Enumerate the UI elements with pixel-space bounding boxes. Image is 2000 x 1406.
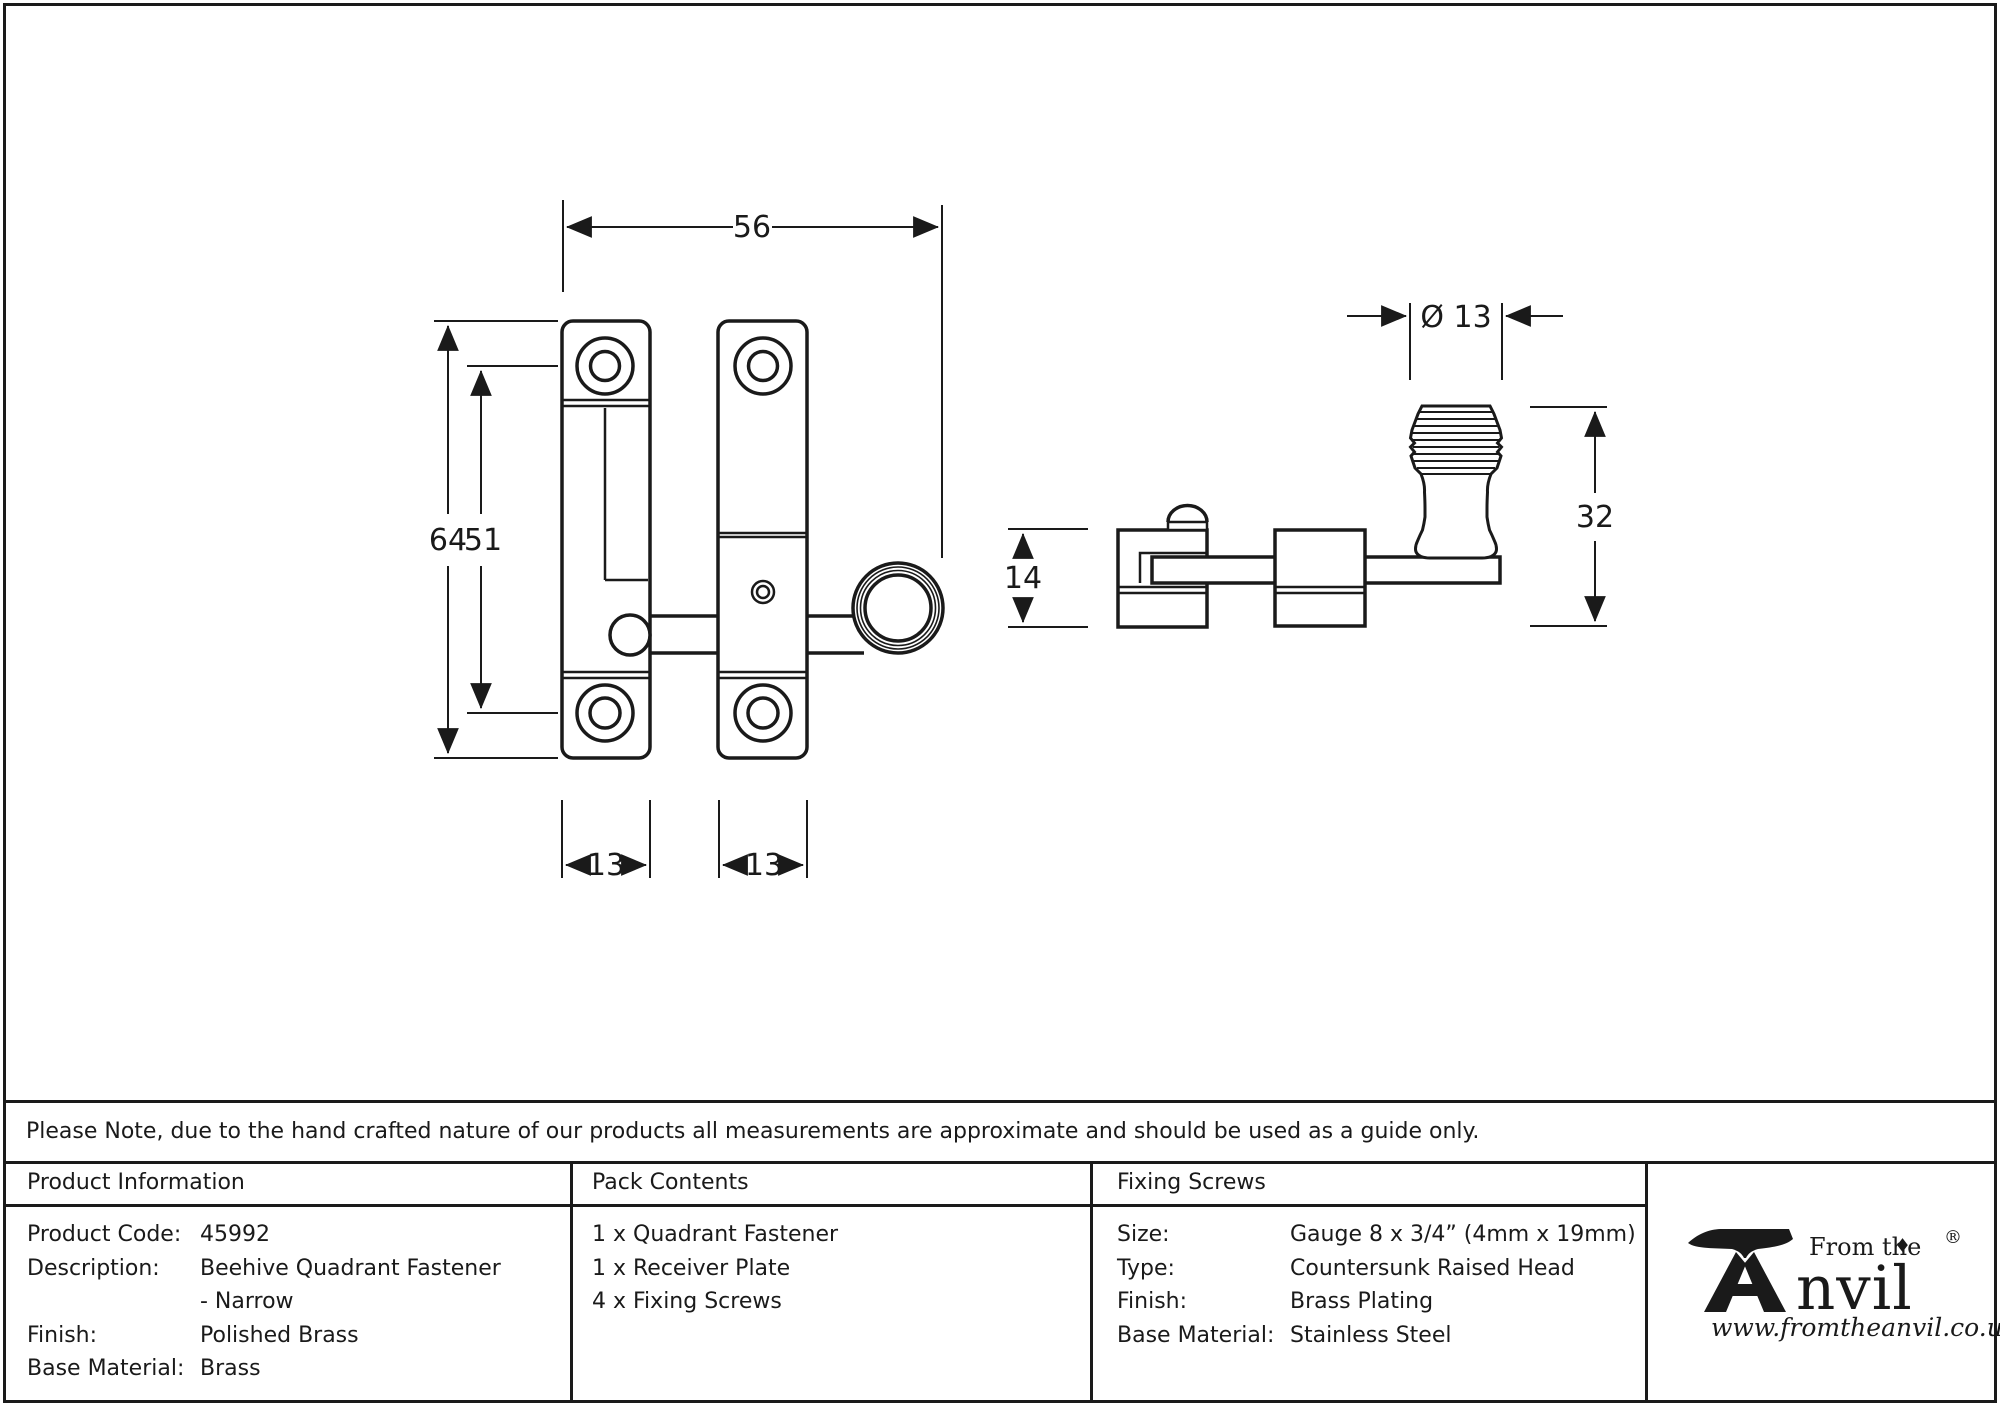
guide-block-side: [1275, 530, 1365, 626]
dim-knob-height-label: 32: [1576, 500, 1614, 535]
dim-height-overall-label: 64: [429, 523, 467, 558]
base-material-value: Brass: [200, 1356, 261, 1381]
product-information-cell: Product Code: 45992 Description: Beehive…: [27, 1218, 501, 1386]
description-row: Description: Beehive Quadrant Fastener: [27, 1252, 501, 1286]
ring-handle: [853, 563, 943, 653]
description-row-2: - Narrow: [27, 1285, 501, 1319]
finish-row: Finish: Polished Brass: [27, 1319, 501, 1353]
screw-material-label: Base Material:: [1117, 1323, 1290, 1348]
fastener-plate-front: [718, 321, 807, 758]
pack-item-2: 1 x Receiver Plate: [592, 1252, 838, 1286]
base-material-row: Base Material: Brass: [27, 1352, 501, 1386]
beehive-knob: [1411, 406, 1502, 558]
description-value: Beehive Quadrant Fastener: [200, 1256, 501, 1281]
pack-item-3: 4 x Fixing Screws: [592, 1285, 838, 1319]
screw-size-row: Size: Gauge 8 x 3/4” (4mm x 19mm): [1117, 1218, 1636, 1252]
logo-website-url: www.fromtheanvil.co.uk: [1711, 1313, 2000, 1342]
screw-finish-value: Brass Plating: [1290, 1289, 1433, 1314]
spec-sheet-page: 56 64 51: [0, 0, 2000, 1406]
base-material-label: Base Material:: [27, 1356, 200, 1381]
fixing-screws-header: Fixing Screws: [1117, 1161, 1266, 1204]
finish-label: Finish:: [27, 1323, 200, 1348]
pack-item-1: 1 x Quadrant Fastener: [592, 1218, 838, 1252]
product-information-header: Product Information: [27, 1161, 245, 1204]
anvil-icon: [1686, 1226, 1804, 1314]
dim-plate-right-label: 13: [745, 848, 783, 883]
dim-plate-left-label: 13: [587, 848, 625, 883]
screw-type-row: Type: Countersunk Raised Head: [1117, 1252, 1636, 1286]
logo-brand-text: nvil: [1796, 1258, 1913, 1319]
screw-type-value: Countersunk Raised Head: [1290, 1256, 1575, 1281]
registered-trademark-symbol: ®: [1944, 1227, 1962, 1248]
fixing-screws-cell: Size: Gauge 8 x 3/4” (4mm x 19mm) Type: …: [1117, 1218, 1636, 1352]
description-value-2: - Narrow: [200, 1289, 294, 1314]
measurement-note: Please Note, due to the hand crafted nat…: [26, 1101, 1479, 1161]
finish-value: Polished Brass: [200, 1323, 359, 1348]
screw-size-label: Size:: [1117, 1222, 1290, 1247]
product-code-label: Product Code:: [27, 1222, 200, 1247]
front-view-drawing: 56 64 51: [429, 200, 943, 883]
dim-bracket-height-label: 14: [1004, 561, 1042, 596]
description-label: Description:: [27, 1256, 200, 1281]
screw-finish-label: Finish:: [1117, 1289, 1290, 1314]
technical-drawing-canvas: 56 64 51: [0, 0, 2000, 1100]
table-divider-1: [570, 1161, 573, 1403]
pack-contents-header: Pack Contents: [592, 1161, 749, 1204]
product-code-value: 45992: [200, 1222, 270, 1247]
dim-knob-diameter-label: Ø 13: [1420, 300, 1491, 335]
table-divider-2: [1090, 1161, 1093, 1403]
product-code-row: Product Code: 45992: [27, 1218, 501, 1252]
dim-height-centers-label: 51: [464, 523, 502, 558]
side-view-drawing: Ø 13: [1004, 300, 1614, 627]
dim-width-label: 56: [733, 210, 771, 245]
screw-size-value: Gauge 8 x 3/4” (4mm x 19mm): [1290, 1222, 1636, 1247]
pack-contents-cell: 1 x Quadrant Fastener 1 x Receiver Plate…: [592, 1218, 838, 1319]
screw-material-row: Base Material: Stainless Steel: [1117, 1319, 1636, 1353]
brand-logo-cell: From the ♦ nvil ® www.fromtheanvil.co.uk: [1645, 1161, 1997, 1400]
screw-material-value: Stainless Steel: [1290, 1323, 1451, 1348]
screw-type-label: Type:: [1117, 1256, 1290, 1281]
header-row-bottom-border: [4, 1204, 1647, 1207]
screw-finish-row: Finish: Brass Plating: [1117, 1285, 1636, 1319]
